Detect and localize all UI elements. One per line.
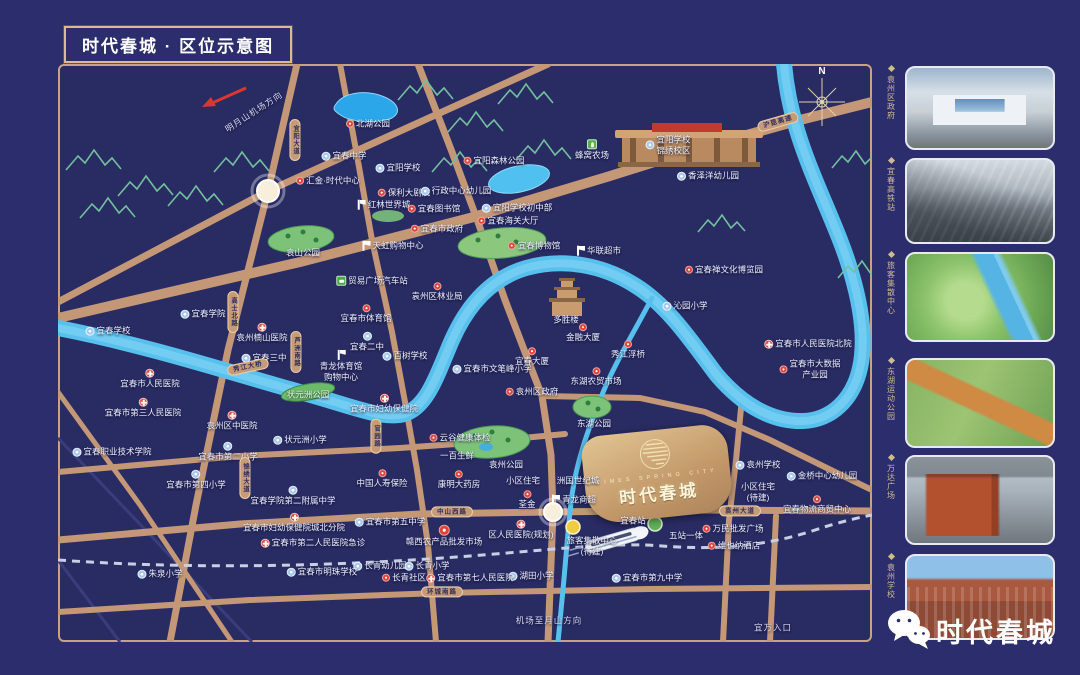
sidebar-caption: 东湖运动公园 xyxy=(884,358,898,448)
wechat-icon xyxy=(884,604,934,654)
sidebar-caption-text: 宜春高铁站 xyxy=(886,167,897,212)
diamond-bullet-icon xyxy=(887,553,894,560)
sidebar-card: 旅客集散中心 xyxy=(905,252,1055,342)
diamond-bullet-icon xyxy=(887,357,894,364)
sidebar-caption-text: 东湖运动公园 xyxy=(886,367,897,421)
poster-stage: N TIMES SPRING CITY 时代春城 北湖公园明月山机场方向宜春中学… xyxy=(0,0,1080,675)
sidebar-card: 袁州区政府 xyxy=(905,66,1055,150)
sidebar-caption: 袁州区政府 xyxy=(884,66,898,150)
project-site-parcel: TIMES SPRING CITY 时代春城 xyxy=(580,423,734,526)
sidebar-caption: 旅客集散中心 xyxy=(884,252,898,342)
diamond-bullet-icon xyxy=(887,454,894,461)
railway-line xyxy=(58,515,872,566)
photo-passenger-transit-center xyxy=(905,252,1055,342)
airport-arrow-icon xyxy=(202,88,246,107)
train-station-marker xyxy=(648,517,662,531)
sidebar-caption-text: 袁州区政府 xyxy=(886,75,897,120)
sidebar-card: 宜春高铁站 xyxy=(905,158,1055,244)
diamond-bullet-icon xyxy=(887,157,894,164)
sidebar-card: 东湖运动公园 xyxy=(905,358,1055,448)
sidebar-card: 万达广场 xyxy=(905,455,1055,545)
photo-district-government xyxy=(905,66,1055,150)
north-lake xyxy=(334,93,397,122)
photo-donghu-sports-park xyxy=(905,358,1055,448)
transit-center-marker xyxy=(566,520,580,534)
brand-logo-icon xyxy=(635,434,675,474)
sidebar-caption: 宜春高铁站 xyxy=(884,158,898,244)
sidebar-caption-text: 万达广场 xyxy=(886,464,897,500)
diamond-bullet-icon xyxy=(887,65,894,72)
photo-wanda-plaza xyxy=(905,455,1055,545)
map-canvas: N xyxy=(58,64,872,642)
footer-brand: 时代春城 xyxy=(936,611,1056,650)
sidebar-caption: 万达广场 xyxy=(884,455,898,545)
parks xyxy=(267,210,611,461)
toll-gate-building xyxy=(615,123,763,167)
duoshenglou-pavilion xyxy=(549,278,585,316)
photo-high-speed-rail-station xyxy=(905,158,1055,244)
page-title: 时代春城 · 区位示意图 xyxy=(64,26,292,63)
diamond-bullet-icon xyxy=(887,251,894,258)
sidebar-caption-text: 袁州学校 xyxy=(886,563,897,599)
sidebar-caption-text: 旅客集散中心 xyxy=(886,261,897,315)
compass-n-label: N xyxy=(818,66,825,77)
